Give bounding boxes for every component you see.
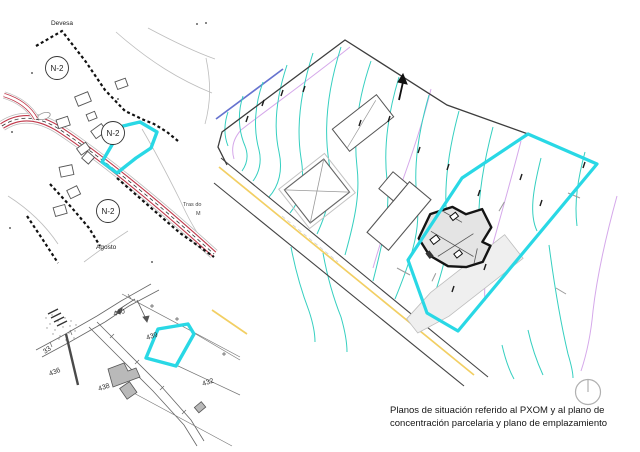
terrain-line bbox=[116, 32, 212, 93]
sheet-caption: Planos de situación referido al PXOM y a… bbox=[390, 404, 634, 431]
building bbox=[75, 92, 92, 107]
stipple-dot bbox=[70, 320, 71, 321]
stipple-dot bbox=[62, 326, 63, 327]
house-guide bbox=[497, 202, 507, 211]
site-plan bbox=[212, 40, 617, 386]
stipple-dot bbox=[74, 330, 75, 331]
building bbox=[67, 186, 81, 199]
road-red bbox=[2, 95, 214, 254]
building bbox=[59, 165, 74, 177]
dot bbox=[117, 98, 119, 100]
elevation-tick bbox=[583, 162, 585, 168]
stipple-dot bbox=[46, 327, 47, 328]
building bbox=[115, 78, 128, 89]
road-edge bbox=[214, 183, 464, 386]
dot bbox=[11, 131, 13, 133]
cross bbox=[175, 317, 179, 321]
stipple-dot bbox=[45, 317, 46, 318]
tick bbox=[50, 342, 52, 347]
elevation-tick bbox=[246, 116, 248, 122]
dot bbox=[151, 261, 153, 263]
parcel-number: 33 bbox=[42, 345, 52, 355]
parcel-number: 439 bbox=[145, 332, 158, 342]
building bbox=[53, 205, 67, 217]
building bbox=[194, 402, 205, 413]
hatch-line bbox=[54, 317, 64, 322]
building-x-square bbox=[279, 153, 355, 228]
building bbox=[120, 382, 137, 400]
caption-line-2: concentración parcelaria y plano de empl… bbox=[390, 417, 634, 430]
house-guide bbox=[429, 273, 438, 281]
boundary-line bbox=[130, 391, 232, 446]
stipple-dot bbox=[58, 338, 59, 339]
caption-line-1: Planos de situación referido al PXOM y a… bbox=[390, 404, 634, 417]
cadastral-map: 440 439 436 438 432 33 bbox=[36, 284, 240, 446]
contour bbox=[291, 247, 315, 342]
elevation-tick bbox=[447, 164, 449, 170]
building-b1 bbox=[332, 95, 393, 152]
road-yellow-secondary bbox=[212, 310, 247, 334]
highlighted-parcel-cadastral bbox=[146, 324, 194, 366]
stipple-dot bbox=[75, 324, 76, 325]
stipple-dot bbox=[73, 337, 74, 338]
place-label-tras-do-2: M bbox=[196, 211, 201, 217]
dot bbox=[9, 227, 11, 229]
elevation-tick bbox=[540, 200, 542, 206]
stipple-dot bbox=[51, 314, 52, 315]
cross bbox=[150, 304, 154, 308]
plans-canvas: N-2 N-2 N-2 Devesa Tras do M Agosto bbox=[0, 0, 640, 452]
road-edge bbox=[221, 158, 488, 377]
elevation-tick bbox=[303, 86, 305, 92]
elevation-tick bbox=[262, 100, 264, 106]
arrow-line bbox=[137, 300, 146, 319]
stipple-dot bbox=[64, 317, 65, 318]
contour bbox=[233, 47, 350, 159]
building bbox=[56, 116, 70, 128]
boundary-line bbox=[194, 333, 240, 360]
contour bbox=[253, 82, 263, 181]
contour bbox=[533, 158, 541, 231]
arrow-head bbox=[143, 316, 149, 322]
zone-labels: N-2 N-2 N-2 bbox=[46, 57, 125, 223]
gray-mark bbox=[556, 288, 566, 294]
hatched-structure bbox=[48, 309, 67, 326]
drawing-sheet: N-2 N-2 N-2 Devesa Tras do M Agosto bbox=[0, 0, 640, 452]
building bbox=[86, 111, 97, 121]
zone-label: N-2 bbox=[107, 129, 120, 138]
building-outline bbox=[332, 95, 393, 152]
place-label-devesa: Devesa bbox=[51, 20, 73, 27]
stipple-dot bbox=[49, 323, 50, 324]
contour bbox=[549, 245, 573, 378]
hatch-line bbox=[51, 313, 61, 318]
elevation-tick bbox=[520, 174, 522, 180]
elevation-tick bbox=[281, 90, 283, 96]
zone-label: N-2 bbox=[51, 64, 64, 73]
contour bbox=[528, 330, 543, 375]
place-label-agosto: Agosto bbox=[96, 244, 117, 251]
contour bbox=[345, 61, 371, 255]
zone-label: N-2 bbox=[102, 207, 115, 216]
parcel-number: 436 bbox=[48, 367, 62, 378]
contour bbox=[239, 96, 247, 171]
contour bbox=[581, 196, 617, 371]
parcel-number: 432 bbox=[201, 378, 214, 388]
north-indicator-icon bbox=[576, 380, 601, 405]
stipple-dot bbox=[52, 333, 53, 334]
dot bbox=[205, 22, 207, 24]
contour bbox=[502, 345, 514, 379]
parcel-number: 438 bbox=[97, 383, 110, 393]
zone-boundary bbox=[27, 216, 58, 263]
stipple-dot bbox=[54, 329, 55, 330]
building-l-shape bbox=[108, 363, 140, 387]
cross bbox=[222, 352, 226, 356]
parcel-number: 440 bbox=[113, 308, 126, 318]
hatch-line bbox=[48, 309, 58, 314]
terrain-line bbox=[148, 28, 215, 59]
hatch-line bbox=[57, 321, 67, 326]
dot bbox=[31, 72, 33, 74]
gray-mark bbox=[397, 268, 410, 275]
north-arrow-shaft bbox=[399, 82, 403, 100]
place-label-tras-do: Tras do bbox=[183, 202, 201, 208]
pxom-map: N-2 N-2 N-2 Devesa Tras do M Agosto bbox=[2, 20, 215, 263]
dot bbox=[196, 23, 198, 25]
terrain-line bbox=[8, 196, 58, 244]
wall-line bbox=[66, 334, 78, 385]
stipple-dot bbox=[69, 325, 70, 326]
